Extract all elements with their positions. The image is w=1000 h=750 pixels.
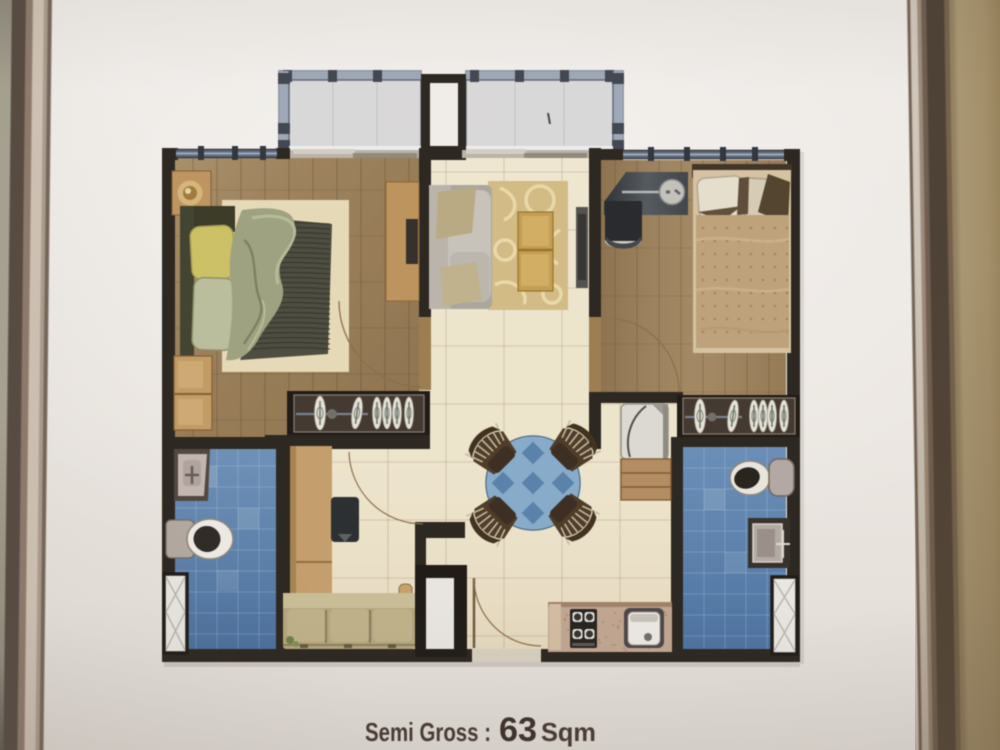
svg-text:Sqm: Sqm (541, 717, 596, 747)
svg-text:Semi Gross :: Semi Gross : (365, 717, 491, 747)
svg-text:63: 63 (499, 711, 537, 749)
